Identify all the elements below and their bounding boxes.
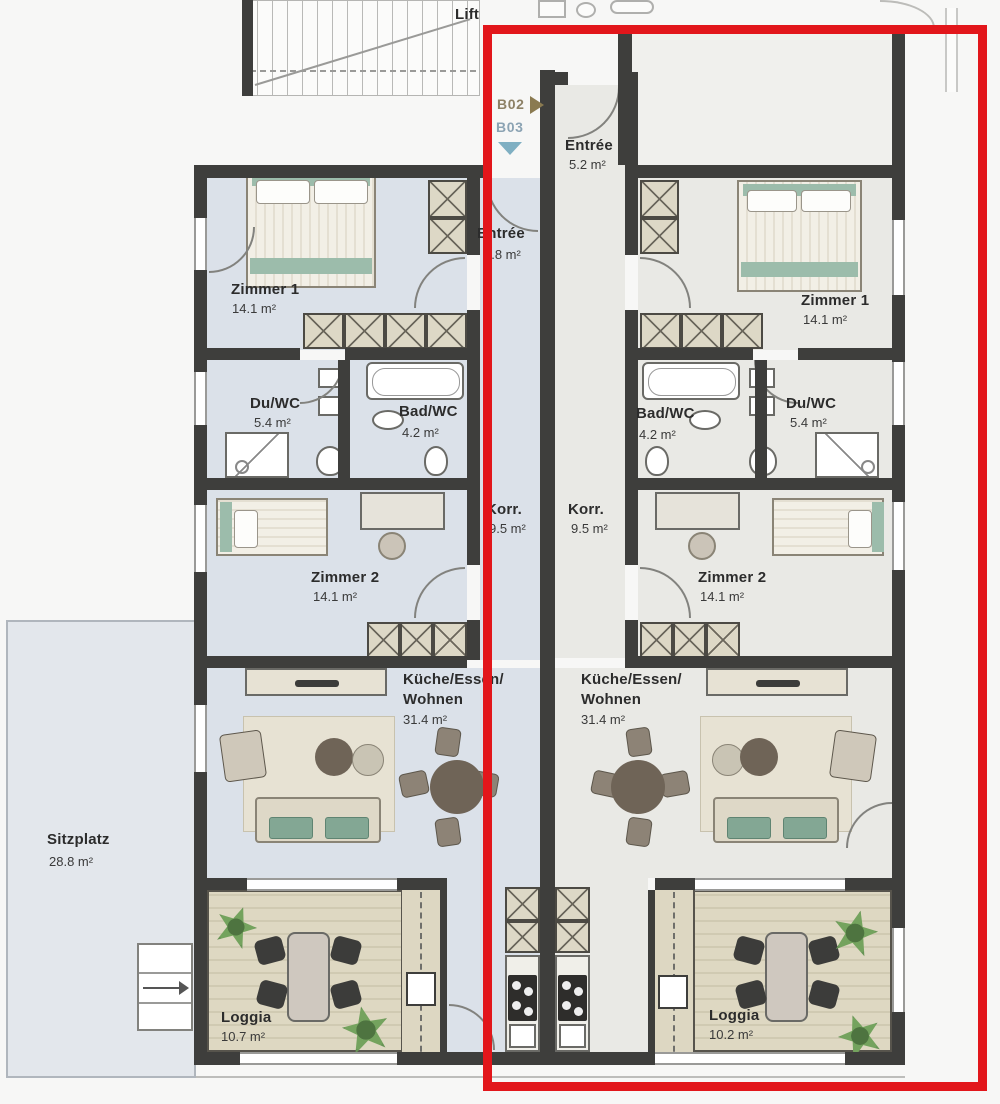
sofa-cushion xyxy=(269,817,313,839)
pillow xyxy=(848,510,872,548)
floor-plan-canvas: Lift B02 B03 xyxy=(0,0,1000,1104)
left-zimmer2-bed xyxy=(216,498,328,556)
right-zimmer1-area: 14.1 m² xyxy=(803,313,847,327)
right-meter-box xyxy=(658,975,688,1009)
b02-arrow-icon xyxy=(530,96,544,114)
lobby-sink-icon xyxy=(576,2,596,18)
window-right-loggia-door xyxy=(695,878,845,891)
right-dining-chair xyxy=(625,726,653,757)
right-sofa xyxy=(713,797,839,843)
left-dining-table xyxy=(430,760,484,814)
lift-label: Lift xyxy=(455,7,479,24)
left-badwc-name: Bad/WC xyxy=(399,404,458,421)
wall-left-facade-a xyxy=(194,878,247,890)
sideboard-handle xyxy=(756,680,800,687)
left-zimmer1-name: Zimmer 1 xyxy=(231,282,299,299)
wall-right-corridor-b xyxy=(625,310,638,565)
lobby-bath-fixture xyxy=(610,0,654,14)
left-zimmer1-area: 14.1 m² xyxy=(232,302,276,316)
sideboard-handle xyxy=(295,680,339,687)
right-loggia-area: 10.2 m² xyxy=(709,1028,753,1042)
left-zimmer2-wardrobe xyxy=(400,622,433,658)
shower-drain-icon xyxy=(235,460,249,474)
right-korr-area: 9.5 m² xyxy=(571,522,608,536)
right-kitchen-tall-cabinet xyxy=(555,921,590,953)
stair-wall xyxy=(242,0,253,96)
right-loggia-name: Loggia xyxy=(709,1008,759,1025)
wall-right-bath-top-b xyxy=(798,348,905,360)
pillow xyxy=(747,190,797,212)
unit-marker-b02: B02 xyxy=(497,96,524,112)
wall-right-bath-bottom xyxy=(638,478,905,490)
shower-drain-icon xyxy=(861,460,875,474)
stair-direction-arrow-icon xyxy=(179,981,189,995)
bathtub-inner xyxy=(648,368,736,396)
left-zimmer2-wardrobe xyxy=(433,622,467,658)
right-dining-chair xyxy=(625,816,653,847)
right-zimmer1-wardrobe xyxy=(722,313,763,349)
left-duwc-name: Du/WC xyxy=(250,396,300,413)
plot-edge-line xyxy=(196,1076,905,1078)
left-kitchen-tall-cabinet xyxy=(505,921,540,953)
right-zimmer2-wardrobe xyxy=(706,622,740,658)
window-right-loggia xyxy=(892,928,905,1012)
right-duwc-name: Du/WC xyxy=(786,396,836,413)
left-zimmer1-bed xyxy=(246,170,376,288)
wall-left-bath-top-a xyxy=(194,348,300,360)
right-zimmer1-bed xyxy=(737,180,862,292)
lobby-cabinet xyxy=(538,0,566,18)
wall-bottom-b xyxy=(397,1052,655,1065)
left-korr-area: 9.5 m² xyxy=(489,522,526,536)
pillow xyxy=(801,190,851,212)
right-kueche-area: 31.4 m² xyxy=(581,713,625,727)
left-kueche-area: 31.4 m² xyxy=(403,713,447,727)
wall-left-zimmer2-bottom xyxy=(194,656,467,668)
wall-right-bath-top-a xyxy=(638,348,753,360)
window-bottom-right xyxy=(655,1052,845,1065)
right-coffee-table-dark xyxy=(740,738,778,776)
window-right-duwc xyxy=(892,362,905,425)
right-kueche-name-line2: Wohnen xyxy=(581,692,641,709)
wall-left-kitchen-side xyxy=(440,890,447,1052)
right-zimmer2-area: 14.1 m² xyxy=(700,590,744,604)
right-desk xyxy=(655,492,740,530)
wall-right-facade-a xyxy=(655,878,695,890)
left-zimmer2-name: Zimmer 2 xyxy=(311,570,379,587)
sofa-cushion xyxy=(325,817,369,839)
unit-marker-b03: B03 xyxy=(496,119,523,135)
wall-bottom-a xyxy=(194,1052,240,1065)
stair-cut-line xyxy=(250,70,476,72)
window-left-duwc xyxy=(194,372,207,425)
wall-left-bath-top-b xyxy=(345,348,467,360)
wall-left-top xyxy=(194,165,480,178)
window-left-loggia-door xyxy=(247,878,397,891)
neighbour-room-floor xyxy=(632,28,892,165)
left-zimmer1-wardrobe xyxy=(303,313,344,349)
left-loggia-table xyxy=(287,932,330,1022)
bathtub-inner xyxy=(372,368,460,396)
right-entree-area: 5.2 m² xyxy=(569,158,606,172)
left-sideboard xyxy=(245,668,387,696)
pillow xyxy=(256,180,310,204)
left-duwc-area: 5.4 m² xyxy=(254,416,291,430)
right-duwc-area: 5.4 m² xyxy=(790,416,827,430)
window-right-zimmer2 xyxy=(892,502,905,570)
right-dining-table xyxy=(611,760,665,814)
stair-tread xyxy=(139,1002,191,1004)
left-kueche-name-line2: Wohnen xyxy=(403,692,463,709)
left-entree-cabinet xyxy=(428,218,467,254)
bed-runner xyxy=(741,262,858,277)
window-bottom-left xyxy=(240,1052,397,1065)
sofa-cushion xyxy=(727,817,771,839)
pillow xyxy=(314,180,368,204)
sofa-cushion xyxy=(783,817,827,839)
left-desk xyxy=(360,492,445,530)
window-left-living xyxy=(194,705,207,772)
stair-direction-line xyxy=(143,987,183,989)
left-stove xyxy=(508,975,537,1021)
left-desk-chair xyxy=(378,532,406,560)
right-kueche-name-line1: Küche/Essen/ xyxy=(581,672,682,689)
wall-right-corridor-c xyxy=(625,620,638,660)
left-zimmer1-wardrobe xyxy=(385,313,426,349)
right-korr-name: Korr. xyxy=(568,502,604,519)
left-dining-chair xyxy=(434,816,462,847)
left-loggia-name: Loggia xyxy=(221,1010,271,1027)
right-zimmer2-name: Zimmer 2 xyxy=(698,570,766,587)
right-entree-name: Entrée xyxy=(565,138,613,155)
right-armchair xyxy=(829,729,877,782)
left-dining-chair xyxy=(434,726,462,757)
left-korr-name: Korr. xyxy=(486,502,522,519)
right-kitchen-tall-cabinet xyxy=(555,887,590,921)
stair-tread xyxy=(139,972,191,974)
wall-party xyxy=(540,70,555,1065)
right-zimmer1-wardrobe xyxy=(640,313,681,349)
right-zimmer1-wardrobe xyxy=(681,313,722,349)
right-coffee-table-light xyxy=(712,744,744,776)
wall-right-entry-top2 xyxy=(618,72,638,85)
right-badwc-name: Bad/WC xyxy=(636,406,695,423)
left-shower xyxy=(225,432,289,478)
left-badwc-toilet xyxy=(424,446,448,476)
wall-left-corridor-a xyxy=(467,178,480,255)
sitzplatz-area: 28.8 m² xyxy=(49,855,93,869)
right-badwc-toilet xyxy=(645,446,669,476)
wall-right-top xyxy=(628,165,905,178)
wall-left-entry-stub xyxy=(480,165,490,178)
left-coffee-table-light xyxy=(352,744,384,776)
sitzplatz-name: Sitzplatz xyxy=(47,832,110,849)
right-zimmer1-name: Zimmer 1 xyxy=(801,293,869,310)
wall-left-facade-b xyxy=(397,878,447,890)
headboard-band xyxy=(220,502,232,552)
wall-left-corridor-b xyxy=(467,310,480,565)
left-coffee-table-dark xyxy=(315,738,353,776)
b03-arrow-icon xyxy=(498,142,522,155)
wall-right-bath-divider xyxy=(755,360,767,480)
neighbour-window xyxy=(945,8,958,92)
right-loggia-table xyxy=(765,932,808,1022)
right-desk-chair xyxy=(688,532,716,560)
left-zimmer2-area: 14.1 m² xyxy=(313,590,357,604)
right-entree-cabinet xyxy=(640,180,679,218)
window-right-zimmer1 xyxy=(892,220,905,295)
left-kitchen-tall-cabinet xyxy=(505,887,540,921)
wall-right-entry-top xyxy=(548,72,568,85)
pillow xyxy=(234,510,258,548)
headboard-band xyxy=(872,502,884,552)
wall-left-exterior xyxy=(194,165,207,1065)
right-zimmer2-bed xyxy=(772,498,884,556)
wall-left-bath-divider xyxy=(338,360,350,480)
left-meter-box xyxy=(406,972,436,1006)
lobby-door-arc xyxy=(880,0,935,28)
wall-right-zimmer2-bottom xyxy=(625,656,905,668)
bed-runner xyxy=(250,258,372,274)
right-bathtub xyxy=(642,362,740,400)
right-sideboard xyxy=(706,668,848,696)
exterior-stair xyxy=(137,943,193,1031)
right-stove xyxy=(558,975,587,1021)
left-loggia-area: 10.7 m² xyxy=(221,1030,265,1044)
left-armchair xyxy=(219,729,267,782)
left-zimmer1-wardrobe xyxy=(344,313,385,349)
left-entree-name: Entrée xyxy=(477,226,525,243)
right-zimmer2-wardrobe xyxy=(673,622,706,658)
right-entree-cabinet xyxy=(640,218,679,254)
left-bathtub xyxy=(366,362,464,400)
left-zimmer2-wardrobe xyxy=(367,622,400,658)
right-kitchen-sink xyxy=(559,1024,586,1048)
left-entree-area: 4.8 m² xyxy=(484,248,521,262)
left-kitchen-sink xyxy=(509,1024,536,1048)
left-badwc-area: 4.2 m² xyxy=(402,426,439,440)
wall-left-corridor-c xyxy=(467,620,480,660)
wall-right-kitchen-side xyxy=(648,890,655,1052)
wall-right-facade-b xyxy=(845,878,892,890)
wall-left-bath-bottom xyxy=(194,478,467,490)
right-badwc-area: 4.2 m² xyxy=(639,428,676,442)
window-left-zimmer2 xyxy=(194,505,207,572)
left-sofa xyxy=(255,797,381,843)
wall-bottom-c xyxy=(845,1052,905,1065)
left-entree-cabinet xyxy=(428,180,467,218)
wall-right-corridor-a xyxy=(625,85,638,255)
left-kueche-name-line1: Küche/Essen/ xyxy=(403,672,504,689)
left-zimmer1-wardrobe xyxy=(426,313,467,349)
window-left-zimmer1 xyxy=(194,218,207,270)
stairwell xyxy=(242,0,480,96)
right-zimmer2-wardrobe xyxy=(640,622,673,658)
neighbour-wall-right xyxy=(892,28,905,165)
right-shower xyxy=(815,432,879,478)
